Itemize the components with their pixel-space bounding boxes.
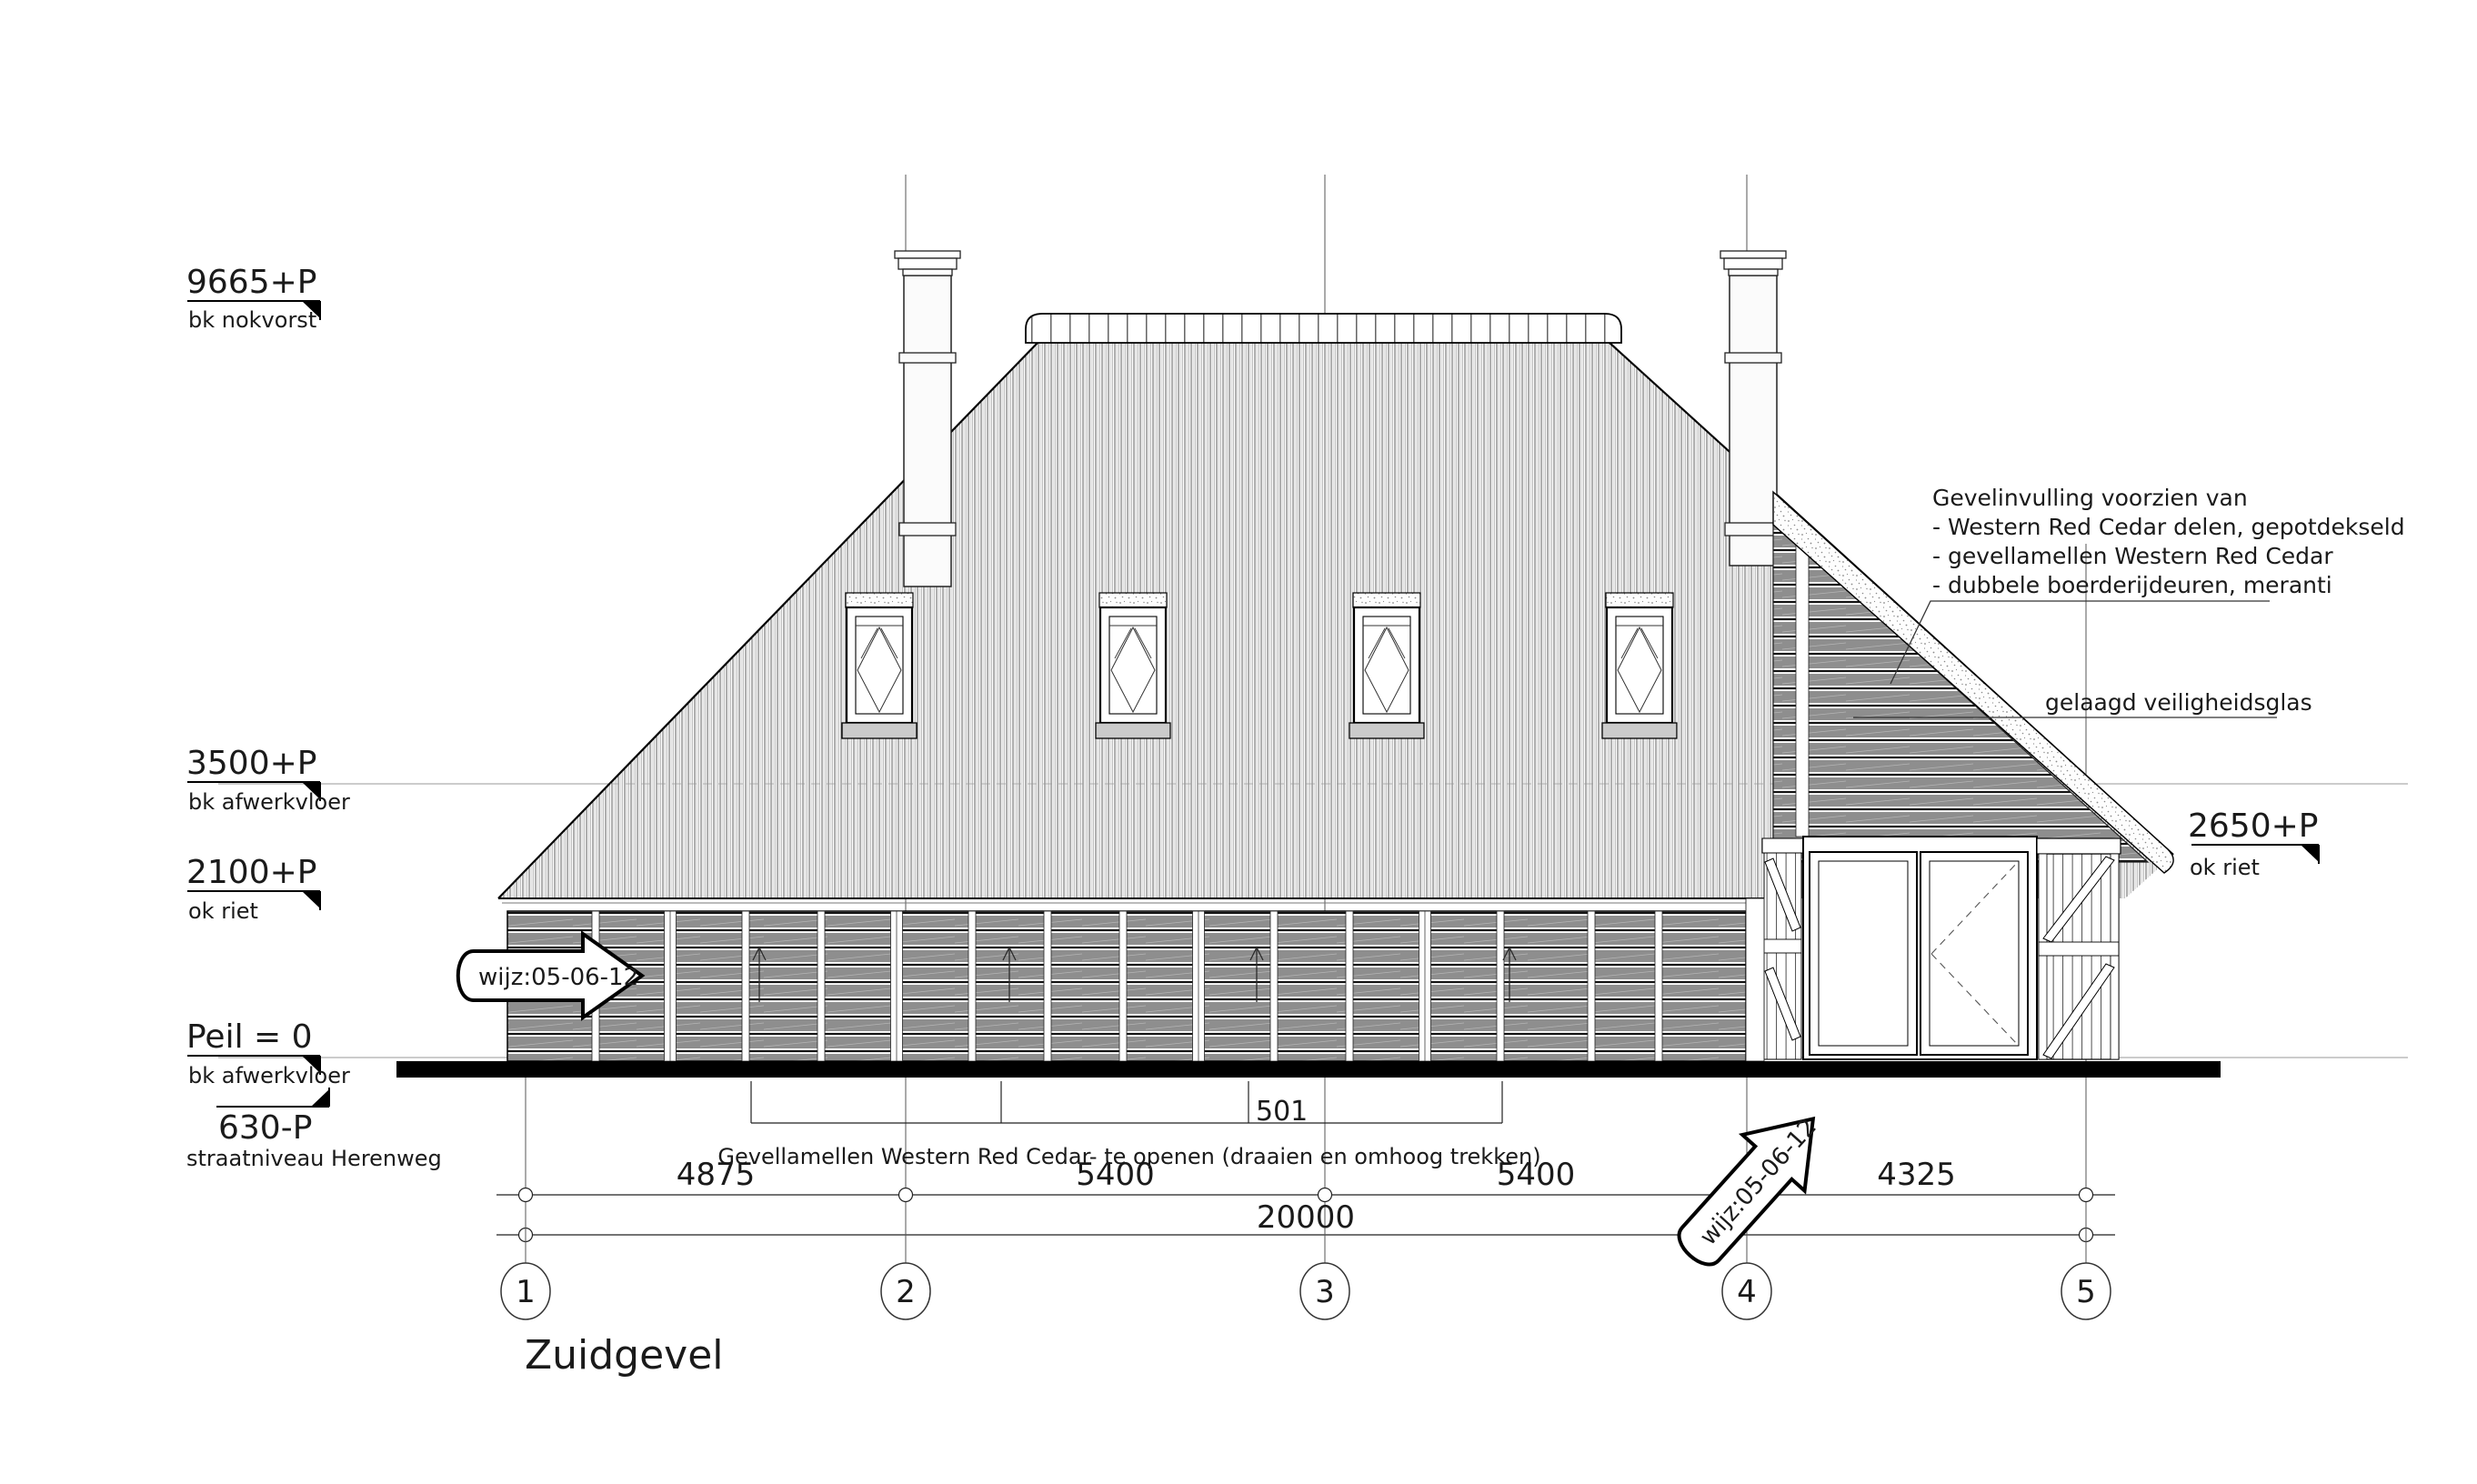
door-left-panel xyxy=(1819,861,1908,1046)
dimension-label: 4875 xyxy=(677,1157,756,1193)
window-lintel xyxy=(1353,593,1420,607)
gable-mullion xyxy=(1796,546,1809,837)
revision-stamp-right xyxy=(1659,1091,1844,1284)
dimension-total-label: 20000 xyxy=(1257,1199,1355,1236)
grid-bubble-2: 2 xyxy=(881,1228,930,1319)
level-label: bk afwerkvloer xyxy=(188,789,350,815)
south-elevation-drawing: wijz:05-06-12 xyxy=(0,0,2477,1484)
level-label: ok riet xyxy=(2190,855,2260,880)
window-sash xyxy=(856,617,903,714)
window-sash xyxy=(1109,617,1157,714)
level-marker-nokvorst: 9665+P bk nokvorst xyxy=(186,264,320,333)
level-value: Peil = 0 xyxy=(186,1018,313,1056)
grid-bubble-label: 1 xyxy=(516,1274,536,1310)
wall-post xyxy=(968,911,976,1061)
wall-post xyxy=(1270,911,1278,1061)
wall-post xyxy=(1119,911,1127,1061)
wall-post xyxy=(1346,911,1353,1061)
facade-wall xyxy=(507,898,1764,1061)
level-marker-2650: 2650+P ok riet xyxy=(2188,807,2319,880)
level-label: straatniveau Herenweg xyxy=(186,1146,442,1171)
level-marker-2100: 2100+P ok riet xyxy=(186,854,320,924)
facade-note-line: - Western Red Cedar delen, gepotdekseld xyxy=(1932,514,2405,540)
grid-bubble-3: 3 xyxy=(1300,1228,1349,1319)
wall-post xyxy=(1497,911,1504,1061)
window-sill xyxy=(1096,723,1170,738)
elevation-drawing-canvas: wijz:05-06-12 xyxy=(0,0,2477,1484)
dimension-label: 5400 xyxy=(1497,1157,1576,1193)
window-lintel xyxy=(846,593,913,607)
grid-bubble-label: 3 xyxy=(1315,1274,1335,1310)
level-label: bk afwerkvloer xyxy=(188,1063,350,1088)
window-sill xyxy=(1349,723,1424,738)
level-label: bk nokvorst xyxy=(188,307,316,333)
roof-window xyxy=(1602,593,1677,738)
level-value: 2650+P xyxy=(2188,807,2319,845)
wall-post xyxy=(817,911,825,1061)
dimension-label: 5400 xyxy=(1076,1157,1155,1193)
level-label: ok riet xyxy=(188,898,258,924)
grid-bubble-5: 5 xyxy=(2061,1228,2111,1319)
wall-corner-board xyxy=(1746,898,1764,1061)
timber-wall-rail xyxy=(2039,942,2119,956)
dimension-tick xyxy=(899,1188,913,1202)
grid-bubble-label: 2 xyxy=(896,1274,916,1310)
facade-note: Gevelinvulling voorzien van - Western Re… xyxy=(1890,485,2405,684)
window-lintel xyxy=(1606,593,1673,607)
wall-post xyxy=(1655,911,1662,1061)
grid-bubble-label: 5 xyxy=(2076,1274,2096,1310)
timber-strip-left-rail xyxy=(1764,939,1801,953)
roof-window xyxy=(1349,593,1424,738)
roof-window xyxy=(842,593,917,738)
grid-bubbles: 12345 xyxy=(501,1228,2111,1319)
level-value: 9665+P xyxy=(186,264,317,301)
window-sash xyxy=(1616,617,1663,714)
dimension-tick xyxy=(519,1188,533,1202)
level-marker-peil: Peil = 0 bk afwerkvloer xyxy=(186,1018,350,1088)
door-right-panel xyxy=(1930,861,2019,1046)
level-value: 3500+P xyxy=(186,745,317,782)
level-marker-straat: 630-P straatniveau Herenweg xyxy=(186,1088,442,1171)
dimension-tick xyxy=(2080,1188,2093,1202)
dimension-label: 4325 xyxy=(1877,1157,1956,1193)
bracket-label: 501 xyxy=(1256,1096,1308,1128)
level-value: 630-P xyxy=(218,1109,312,1147)
wall-post xyxy=(1044,911,1051,1061)
facade-note-line: - gevellamellen Western Red Cedar xyxy=(1932,543,2333,569)
window-sill xyxy=(842,723,917,738)
facade-note-line: - dubbele boerderijdeuren, meranti xyxy=(1932,572,2332,598)
dimension-lines: 487554005400432520000 xyxy=(496,1157,2115,1242)
wall-post xyxy=(1588,911,1595,1061)
louvre-bracket xyxy=(751,1081,1502,1123)
glass-note-text: gelaagd veiligheidsglas xyxy=(2045,689,2312,716)
ground-line xyxy=(396,1061,2221,1078)
timber-corner-post xyxy=(2111,854,2119,1059)
chimney xyxy=(895,251,960,587)
timber-wall-top-beam xyxy=(2037,838,2121,854)
grid-bubble-label: 4 xyxy=(1737,1274,1757,1310)
window-lintel xyxy=(1099,593,1167,607)
window-sash xyxy=(1363,617,1410,714)
level-value: 2100+P xyxy=(186,854,317,891)
timber-corner-post xyxy=(2039,854,2047,1059)
level-marker-3500: 3500+P bk afwerkvloer xyxy=(186,745,350,815)
window-sill xyxy=(1602,723,1677,738)
wall-post xyxy=(742,911,749,1061)
ridge-tiles xyxy=(1026,314,1621,343)
drawing-title: Zuidgevel xyxy=(525,1332,724,1379)
grid-bubble-1: 1 xyxy=(501,1228,550,1319)
facade-note-line: Gevelinvulling voorzien van xyxy=(1932,485,2248,511)
roof-window xyxy=(1096,593,1170,738)
timber-wall-right xyxy=(2039,854,2119,1059)
timber-strip-left-beam xyxy=(1762,838,1803,853)
